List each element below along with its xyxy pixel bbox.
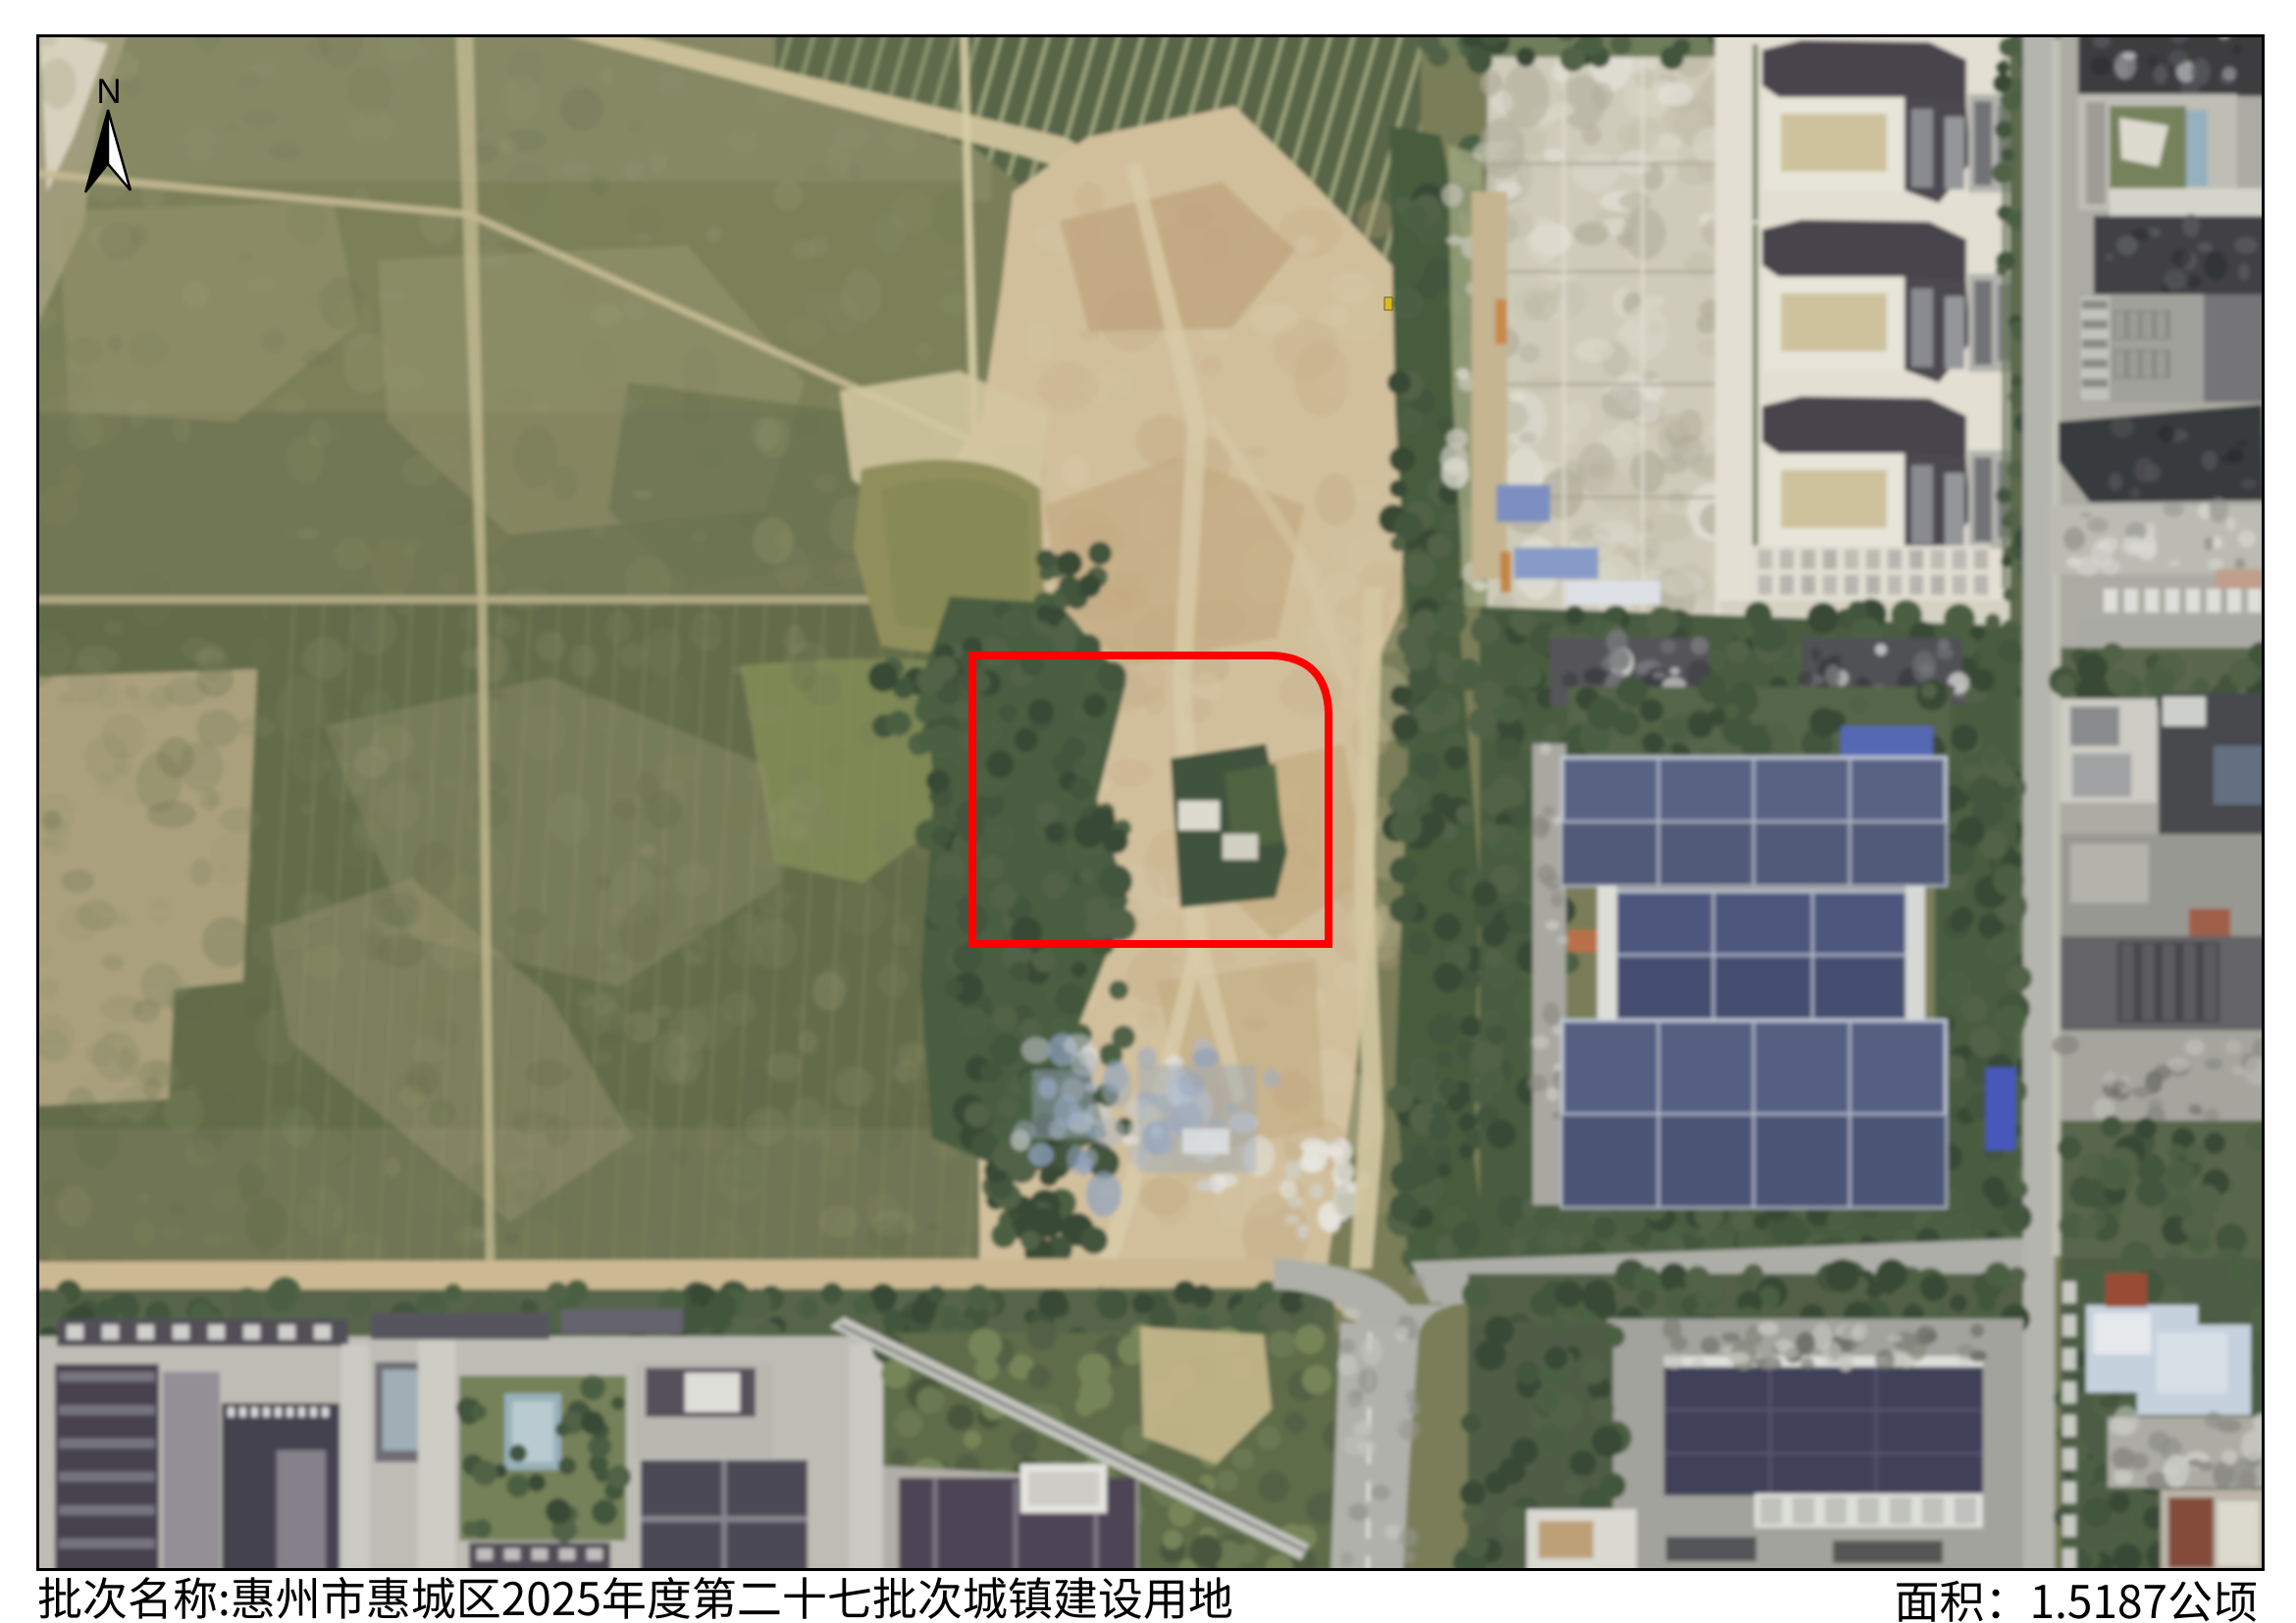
- svg-text:N: N: [96, 73, 121, 111]
